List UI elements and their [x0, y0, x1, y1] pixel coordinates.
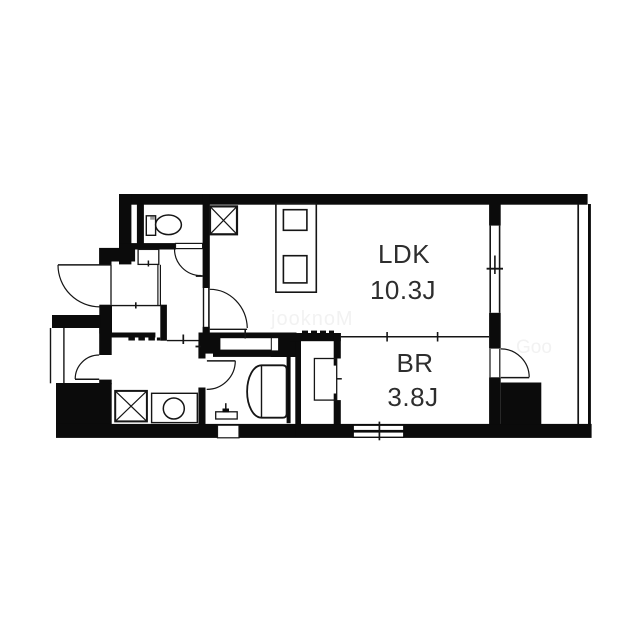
svg-text:10.3J: 10.3J	[370, 275, 436, 305]
svg-text:jooknoM: jooknoM	[270, 308, 354, 330]
svg-text:LDK: LDK	[378, 239, 430, 269]
svg-text:3.8J: 3.8J	[387, 382, 438, 412]
svg-text:Goo: Goo	[516, 337, 552, 358]
svg-text:BR: BR	[396, 348, 433, 378]
